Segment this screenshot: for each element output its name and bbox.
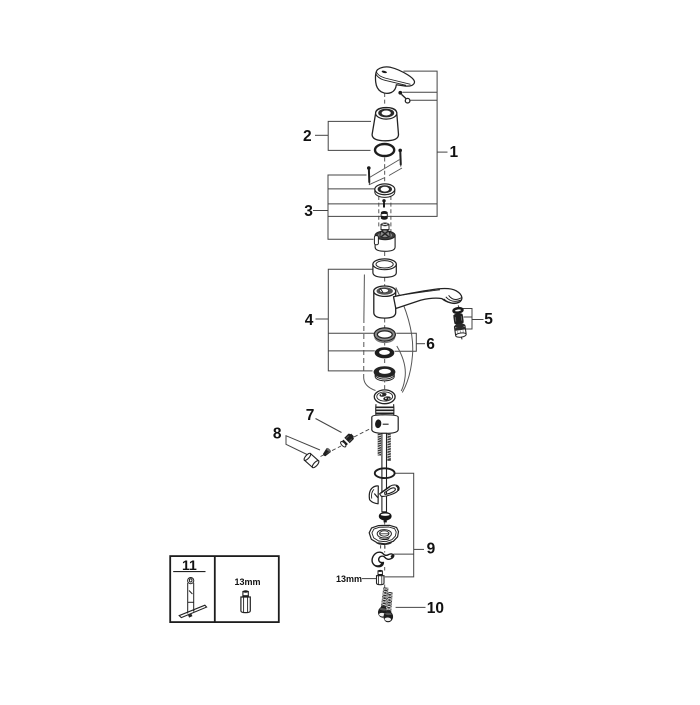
svg-text:2: 2 bbox=[303, 128, 312, 145]
svg-text:13mm: 13mm bbox=[235, 577, 261, 587]
svg-text:1: 1 bbox=[450, 144, 459, 161]
svg-text:4: 4 bbox=[305, 312, 314, 329]
svg-text:6: 6 bbox=[426, 336, 435, 353]
svg-text:13mm: 13mm bbox=[336, 574, 362, 584]
svg-text:9: 9 bbox=[427, 541, 436, 558]
svg-text:5: 5 bbox=[484, 311, 493, 328]
svg-text:7: 7 bbox=[306, 407, 315, 424]
svg-text:3: 3 bbox=[304, 203, 313, 220]
svg-text:11: 11 bbox=[182, 557, 197, 573]
svg-text:10: 10 bbox=[427, 600, 444, 617]
svg-text:8: 8 bbox=[273, 426, 282, 443]
